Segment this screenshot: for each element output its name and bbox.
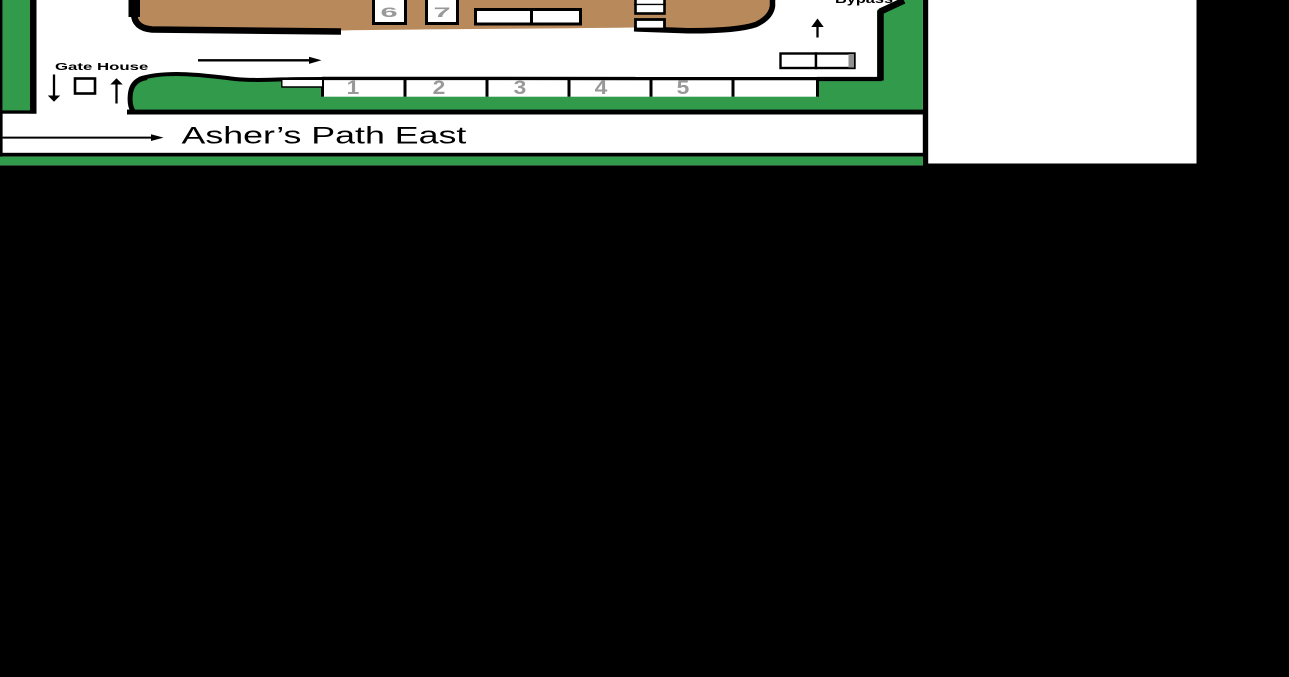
svg-text:Gate House: Gate House	[55, 61, 149, 73]
svg-text:4: 4	[595, 78, 608, 99]
svg-text:3: 3	[514, 78, 527, 99]
svg-text:Asher’s Path East: Asher’s Path East	[182, 122, 467, 149]
svg-text:2: 2	[433, 78, 446, 99]
svg-text:1: 1	[347, 78, 360, 99]
svg-text:Bypass: Bypass	[835, 0, 893, 7]
svg-text:7: 7	[433, 5, 450, 21]
svg-text:5: 5	[677, 78, 690, 99]
svg-text:6: 6	[380, 5, 397, 21]
